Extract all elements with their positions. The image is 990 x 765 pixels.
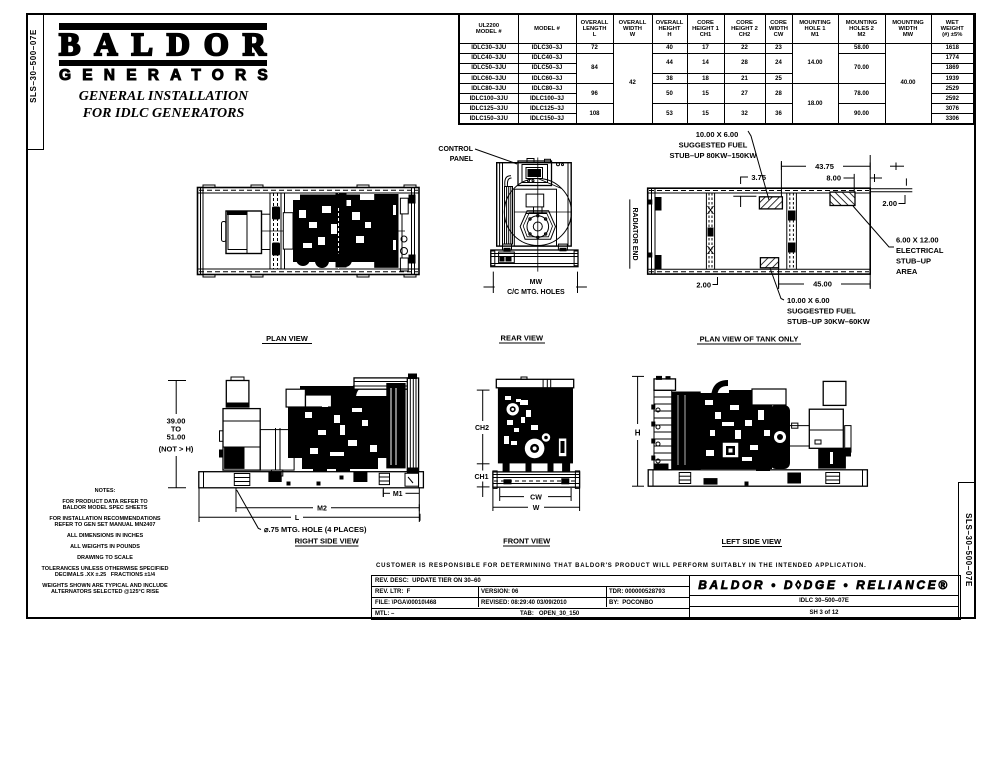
svg-text:ELECTRICAL: ELECTRICAL (896, 246, 944, 255)
svg-text:STUB–UP 30KW–60KW: STUB–UP 30KW–60KW (787, 317, 871, 326)
svg-text:45.00: 45.00 (813, 280, 832, 289)
svg-text:W: W (533, 505, 540, 512)
svg-text:L: L (295, 515, 300, 522)
svg-text:51.00: 51.00 (167, 433, 186, 442)
svg-text:PANEL: PANEL (450, 156, 474, 163)
svg-text:10.00 X 6.00: 10.00 X 6.00 (787, 296, 830, 305)
svg-text:CW: CW (530, 494, 542, 501)
svg-text:8.00: 8.00 (826, 174, 841, 183)
svg-text:(NOT > H): (NOT > H) (159, 445, 194, 454)
svg-text:REAR VIEW: REAR VIEW (501, 334, 544, 343)
svg-text:6.00 X 12.00: 6.00 X 12.00 (896, 236, 939, 245)
svg-text:STUB–UP: STUB–UP (896, 257, 931, 266)
svg-text:43.75: 43.75 (815, 162, 834, 171)
svg-text:10.00 X 6.00: 10.00 X 6.00 (696, 130, 739, 139)
svg-text:M1: M1 (393, 491, 403, 498)
svg-text:FRONT VIEW: FRONT VIEW (503, 537, 551, 546)
svg-text:C/C MTG. HOLES: C/C MTG. HOLES (507, 289, 565, 296)
svg-text:SUGGESTED FUEL: SUGGESTED FUEL (787, 307, 856, 316)
svg-text:CH2: CH2 (475, 425, 489, 432)
svg-text:M2: M2 (317, 505, 327, 512)
svg-text:LEFT SIDE VIEW: LEFT SIDE VIEW (722, 537, 783, 546)
svg-text:H: H (635, 429, 641, 438)
svg-text:PLAN VIEW OF TANK ONLY: PLAN VIEW OF TANK ONLY (700, 335, 799, 344)
svg-text:2.00: 2.00 (696, 280, 711, 289)
svg-text:AREA: AREA (896, 267, 918, 276)
svg-text:CH1: CH1 (474, 474, 488, 481)
svg-text:CONTROL: CONTROL (438, 146, 473, 153)
svg-text:⌀.75 MTG. HOLE (4 PLACES): ⌀.75 MTG. HOLE (4 PLACES) (264, 525, 367, 534)
svg-text:2.00: 2.00 (882, 199, 897, 208)
svg-text:RIGHT SIDE VIEW: RIGHT SIDE VIEW (295, 537, 360, 546)
svg-text:STUB–UP 80KW–150KW: STUB–UP 80KW–150KW (670, 151, 758, 160)
svg-text:RADIATOR END: RADIATOR END (631, 207, 638, 260)
svg-text:MW: MW (530, 279, 543, 286)
svg-text:PLAN VIEW: PLAN VIEW (266, 334, 309, 343)
svg-text:SUGGESTED FUEL: SUGGESTED FUEL (679, 141, 748, 150)
